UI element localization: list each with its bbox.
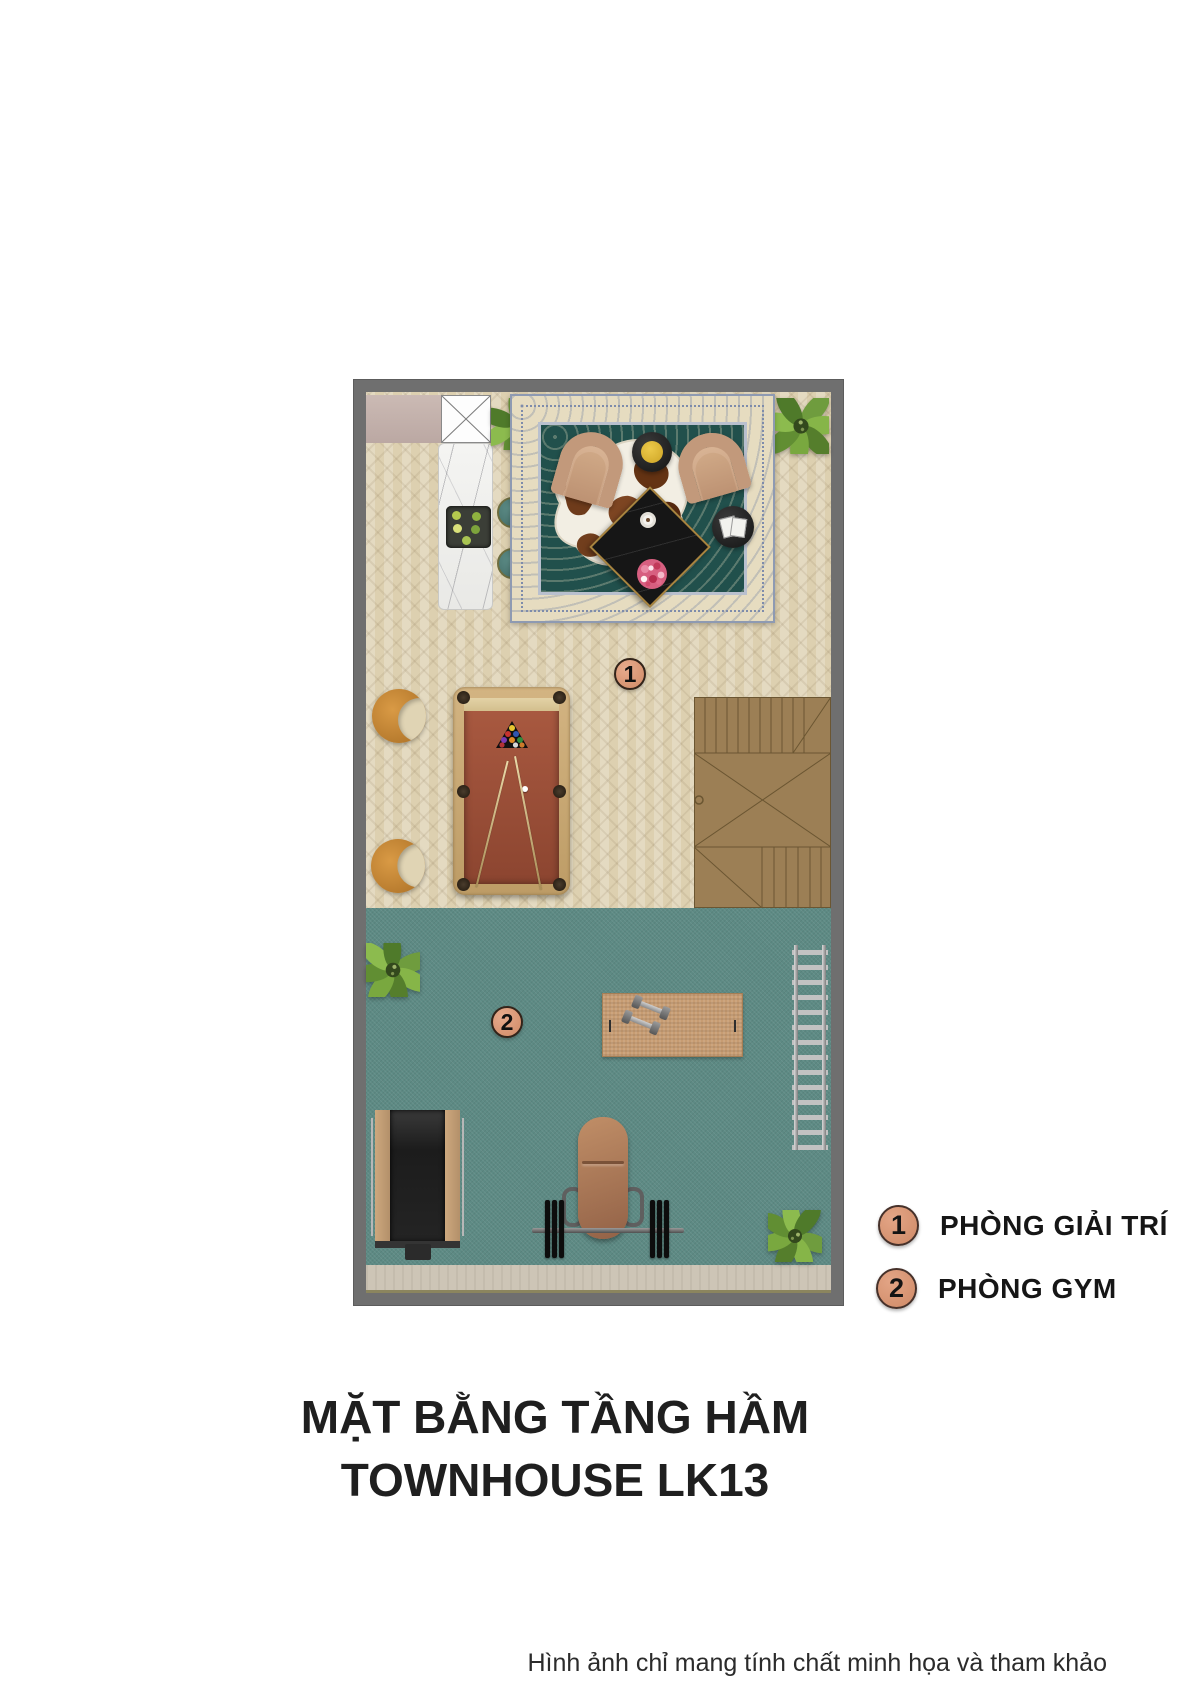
- weight-bench: [578, 1117, 628, 1239]
- room-marker-2: 2: [491, 1006, 523, 1038]
- side-table-with-magazines: [712, 506, 754, 548]
- serving-tray: [446, 506, 491, 548]
- disclaimer-note: Hình ảnh chỉ mang tính chất minh họa và …: [527, 1649, 1107, 1678]
- pool-table: [453, 687, 570, 895]
- legend-circle-2: 2: [876, 1268, 917, 1309]
- crescent-chair: [372, 689, 426, 743]
- x-cross-icon: [442, 396, 490, 442]
- treadmill-console: [405, 1244, 431, 1260]
- billiard-ball-rack: [495, 720, 529, 750]
- pool-table-head-rail: [464, 698, 559, 711]
- treadmill-belt: [390, 1110, 445, 1242]
- room-marker-1: 1: [614, 658, 646, 690]
- plan-title-line1: MẶT BẰNG TẦNG HẦM: [190, 1386, 920, 1449]
- yellow-plate: [641, 441, 663, 463]
- page: 1: [0, 0, 1193, 1687]
- room-marker-2-number: 2: [501, 1009, 514, 1036]
- legend-number-1: 1: [891, 1210, 906, 1241]
- legend-item-2: 2 PHÒNG GYM: [876, 1268, 1117, 1309]
- pouf-with-plate: [632, 432, 672, 472]
- weight-plates-right: [650, 1200, 670, 1258]
- plant-icon: [773, 398, 829, 454]
- legend-item-1: 1 PHÒNG GIẢI TRÍ: [878, 1205, 1168, 1246]
- coffee-cup: [640, 512, 656, 528]
- legend-circle-1: 1: [878, 1205, 919, 1246]
- exercise-mat: [602, 993, 743, 1057]
- shaft-x-symbol: [441, 395, 491, 443]
- floor-plan: 1: [354, 380, 843, 1305]
- cabinet: [366, 395, 443, 443]
- plant-icon: [768, 1210, 822, 1262]
- plan-title-line2: TOWNHOUSE LK13: [190, 1449, 920, 1512]
- floor-plan-inner: 1: [366, 392, 831, 1293]
- staircase: [694, 697, 831, 908]
- treadmill: [373, 1110, 462, 1256]
- flower-bouquet: [635, 557, 669, 591]
- legend-label-1: PHÒNG GIẢI TRÍ: [940, 1210, 1168, 1242]
- legend-label-2: PHÒNG GYM: [938, 1273, 1117, 1305]
- magazine: [730, 517, 747, 538]
- weight-plates-left: [545, 1200, 565, 1258]
- dumbbell-rack: [792, 945, 828, 1150]
- room-marker-1-number: 1: [624, 661, 637, 688]
- plan-title: MẶT BẰNG TẦNG HẦM TOWNHOUSE LK13: [190, 1386, 920, 1513]
- bottom-terrace-strip: [366, 1265, 831, 1293]
- plant-icon: [366, 943, 420, 997]
- legend-number-2: 2: [889, 1273, 904, 1304]
